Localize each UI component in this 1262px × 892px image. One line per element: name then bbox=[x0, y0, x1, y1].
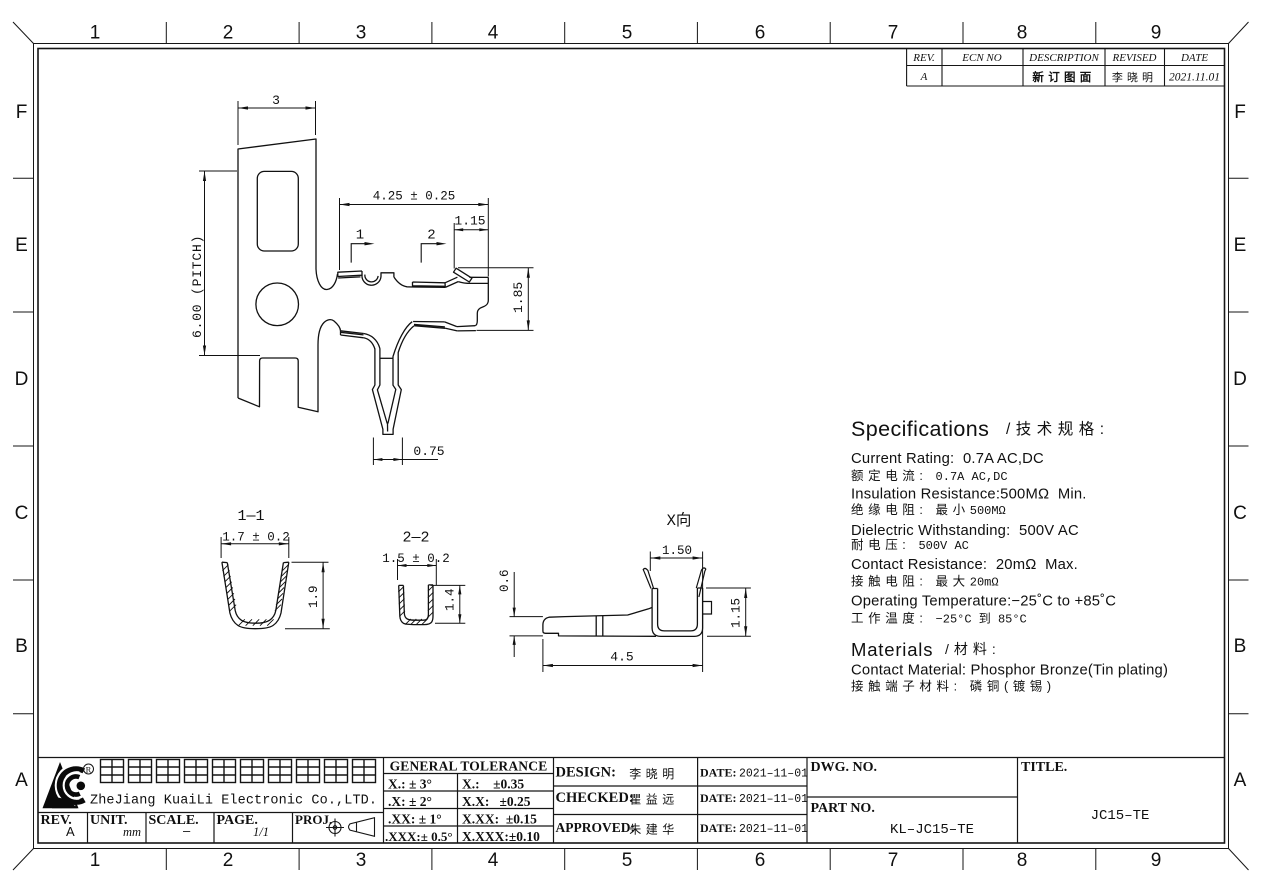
svg-text:4: 4 bbox=[488, 23, 499, 44]
svg-text:APPROVED:: APPROVED: bbox=[556, 820, 636, 835]
svg-text:1.15: 1.15 bbox=[730, 598, 744, 628]
svg-text:X.XXX:±0.10: X.XXX:±0.10 bbox=[462, 829, 540, 844]
svg-text:Current Rating: 0.7A AC,DC: Current Rating: 0.7A AC,DC bbox=[851, 451, 1044, 467]
svg-text:4.5: 4.5 bbox=[610, 650, 633, 665]
svg-text:1.15: 1.15 bbox=[454, 214, 485, 229]
svg-text:接触端子材料: 磷铜(镀锡): 接触端子材料: 磷铜(镀锡) bbox=[851, 679, 1056, 694]
svg-text:1.4: 1.4 bbox=[444, 588, 458, 611]
svg-text:/材料:: /材料: bbox=[945, 641, 1001, 657]
svg-text:2021.11.01: 2021.11.01 bbox=[1169, 72, 1220, 84]
svg-text:1.9: 1.9 bbox=[307, 585, 321, 608]
svg-text:2: 2 bbox=[223, 23, 234, 44]
svg-text:1: 1 bbox=[90, 23, 101, 44]
svg-text:1.50: 1.50 bbox=[662, 544, 692, 558]
svg-text:1.7 ± 0.2: 1.7 ± 0.2 bbox=[222, 531, 290, 545]
svg-text:–: – bbox=[183, 823, 191, 838]
svg-text:耐电压: 500V AC: 耐电压: 500V AC bbox=[851, 538, 969, 553]
svg-text:DESCRIPTION: DESCRIPTION bbox=[1028, 52, 1099, 64]
svg-text:8: 8 bbox=[1017, 850, 1028, 871]
svg-text:REV.: REV. bbox=[912, 52, 935, 64]
svg-text:1.5 ± 0.2: 1.5 ± 0.2 bbox=[382, 552, 450, 566]
svg-text:5: 5 bbox=[622, 23, 633, 44]
svg-text:4.25 ± 0.25: 4.25 ± 0.25 bbox=[373, 190, 456, 204]
svg-text:/技术规格:: /技术规格: bbox=[1006, 420, 1110, 438]
svg-text:A: A bbox=[920, 71, 928, 83]
svg-text:Operating Temperature:−25˚C to: Operating Temperature:−25˚C to +85˚C bbox=[851, 594, 1116, 610]
svg-text:7: 7 bbox=[888, 850, 899, 871]
svg-text:DATE:: DATE: bbox=[700, 766, 736, 780]
svg-text:额定电流: 0.7A AC,DC: 额定电流: 0.7A AC,DC bbox=[851, 468, 1008, 484]
svg-text:C: C bbox=[15, 503, 29, 524]
svg-text:接触电阻: 最大20mΩ: 接触电阻: 最大20mΩ bbox=[851, 574, 999, 590]
svg-text:2021–11–01: 2021–11–01 bbox=[739, 793, 808, 806]
svg-text:D: D bbox=[15, 369, 29, 390]
svg-text:1—1: 1—1 bbox=[237, 508, 264, 525]
svg-text:SCALE.: SCALE. bbox=[149, 813, 199, 828]
svg-text:4: 4 bbox=[488, 850, 499, 871]
svg-text:.XX: ± 1°: .XX: ± 1° bbox=[388, 812, 442, 827]
svg-text:B: B bbox=[1234, 636, 1247, 657]
svg-text:李晓明: 李晓明 bbox=[1112, 70, 1157, 84]
svg-text:F: F bbox=[16, 102, 28, 123]
svg-text:X.: ±0.35: X.: ±0.35 bbox=[462, 777, 524, 792]
svg-text:5: 5 bbox=[622, 850, 633, 871]
svg-text:X向: X向 bbox=[667, 511, 692, 530]
svg-text:X.: ± 3°: X.: ± 3° bbox=[388, 777, 432, 792]
svg-text:X.XX: ±0.15: X.XX: ±0.15 bbox=[462, 812, 537, 827]
svg-text:KL–JC15–TE: KL–JC15–TE bbox=[890, 822, 974, 838]
svg-text:9: 9 bbox=[1151, 850, 1162, 871]
svg-text:mm: mm bbox=[123, 825, 141, 839]
svg-text:PART NO.: PART NO. bbox=[811, 801, 875, 816]
svg-text:工作温度: −25°C 到 85°C: 工作温度: −25°C 到 85°C bbox=[851, 611, 1027, 627]
svg-text:DATE:: DATE: bbox=[700, 821, 736, 835]
svg-text:1: 1 bbox=[356, 228, 364, 244]
svg-text:2—2: 2—2 bbox=[402, 530, 429, 547]
svg-text:Contact Resistance: 20mΩ Max: Contact Resistance: 20mΩ Max. bbox=[851, 557, 1078, 573]
svg-text:1/1: 1/1 bbox=[253, 825, 269, 839]
svg-text:DWG. NO.: DWG. NO. bbox=[811, 760, 878, 775]
svg-text:新订图面: 新订图面 bbox=[1032, 70, 1095, 84]
svg-text:1: 1 bbox=[90, 850, 101, 871]
svg-text:.XXX:± 0.5°: .XXX:± 0.5° bbox=[385, 829, 453, 844]
svg-text:F: F bbox=[1234, 102, 1246, 123]
svg-text:6: 6 bbox=[755, 23, 766, 44]
svg-text:A: A bbox=[1234, 770, 1247, 791]
svg-text:2: 2 bbox=[223, 850, 234, 871]
svg-text:2021–11–01: 2021–11–01 bbox=[739, 823, 808, 836]
svg-text:R: R bbox=[86, 765, 92, 775]
svg-text:7: 7 bbox=[888, 23, 899, 44]
svg-text:3: 3 bbox=[356, 23, 367, 44]
svg-text:2: 2 bbox=[427, 228, 435, 244]
svg-text:瞿益远: 瞿益远 bbox=[629, 793, 679, 807]
svg-text:X.X: ±0.25: X.X: ±0.25 bbox=[462, 794, 531, 809]
svg-text:CHECKED:: CHECKED: bbox=[556, 790, 634, 806]
svg-text:DATE:: DATE: bbox=[700, 791, 736, 805]
svg-text:D: D bbox=[1233, 369, 1247, 390]
svg-text:李晓明: 李晓明 bbox=[629, 766, 679, 781]
svg-text:B: B bbox=[15, 636, 28, 657]
svg-text:UNIT.: UNIT. bbox=[90, 813, 127, 828]
svg-text:GENERAL TOLERANCE: GENERAL TOLERANCE bbox=[390, 759, 548, 774]
svg-text:绝缘电阻: 最小500MΩ: 绝缘电阻: 最小500MΩ bbox=[851, 502, 1006, 518]
svg-text:Insulation Resistance:500MΩ M: Insulation Resistance:500MΩ Min. bbox=[851, 487, 1087, 503]
svg-text:.X: ± 2°: .X: ± 2° bbox=[388, 794, 432, 809]
svg-text:9: 9 bbox=[1151, 23, 1162, 44]
svg-text:0.6: 0.6 bbox=[498, 569, 512, 592]
svg-text:8: 8 bbox=[1017, 23, 1028, 44]
svg-text:DESIGN:: DESIGN: bbox=[556, 765, 616, 781]
svg-text:JC15–TE: JC15–TE bbox=[1091, 808, 1150, 824]
svg-text:Materials: Materials bbox=[851, 639, 933, 660]
svg-text:A: A bbox=[15, 770, 28, 791]
svg-text:REVISED: REVISED bbox=[1112, 52, 1157, 64]
svg-text:PAGE.: PAGE. bbox=[217, 813, 258, 828]
svg-text:Contact Material: Phosphor Bro: Contact Material: Phosphor Bronze(Tin pl… bbox=[851, 663, 1168, 679]
svg-text:6.00 (PITCH): 6.00 (PITCH) bbox=[190, 235, 205, 338]
svg-text:E: E bbox=[15, 235, 28, 256]
svg-text:1.85: 1.85 bbox=[511, 282, 526, 313]
svg-text:3: 3 bbox=[272, 93, 280, 108]
svg-text:DATE: DATE bbox=[1180, 52, 1208, 64]
svg-text:PROJ.: PROJ. bbox=[295, 812, 332, 827]
svg-text:C: C bbox=[1233, 503, 1247, 524]
svg-text:E: E bbox=[1234, 235, 1247, 256]
svg-text:ECN NO: ECN NO bbox=[961, 52, 1001, 64]
svg-text:A: A bbox=[66, 824, 75, 839]
svg-text:3: 3 bbox=[356, 850, 367, 871]
svg-text:2021–11–01: 2021–11–01 bbox=[739, 768, 808, 781]
svg-text:Dielectric Withstanding: 500V: Dielectric Withstanding: 500V AC bbox=[851, 523, 1079, 539]
svg-text:朱建华: 朱建华 bbox=[629, 823, 679, 837]
svg-text:TITLE.: TITLE. bbox=[1021, 760, 1067, 775]
svg-text:ZheJiang KuaiLi Electronic Co.: ZheJiang KuaiLi Electronic Co.,LTD. bbox=[90, 794, 377, 809]
svg-text:6: 6 bbox=[755, 850, 766, 871]
svg-text:0.75: 0.75 bbox=[413, 444, 444, 459]
svg-text:Specifications: Specifications bbox=[851, 417, 989, 441]
